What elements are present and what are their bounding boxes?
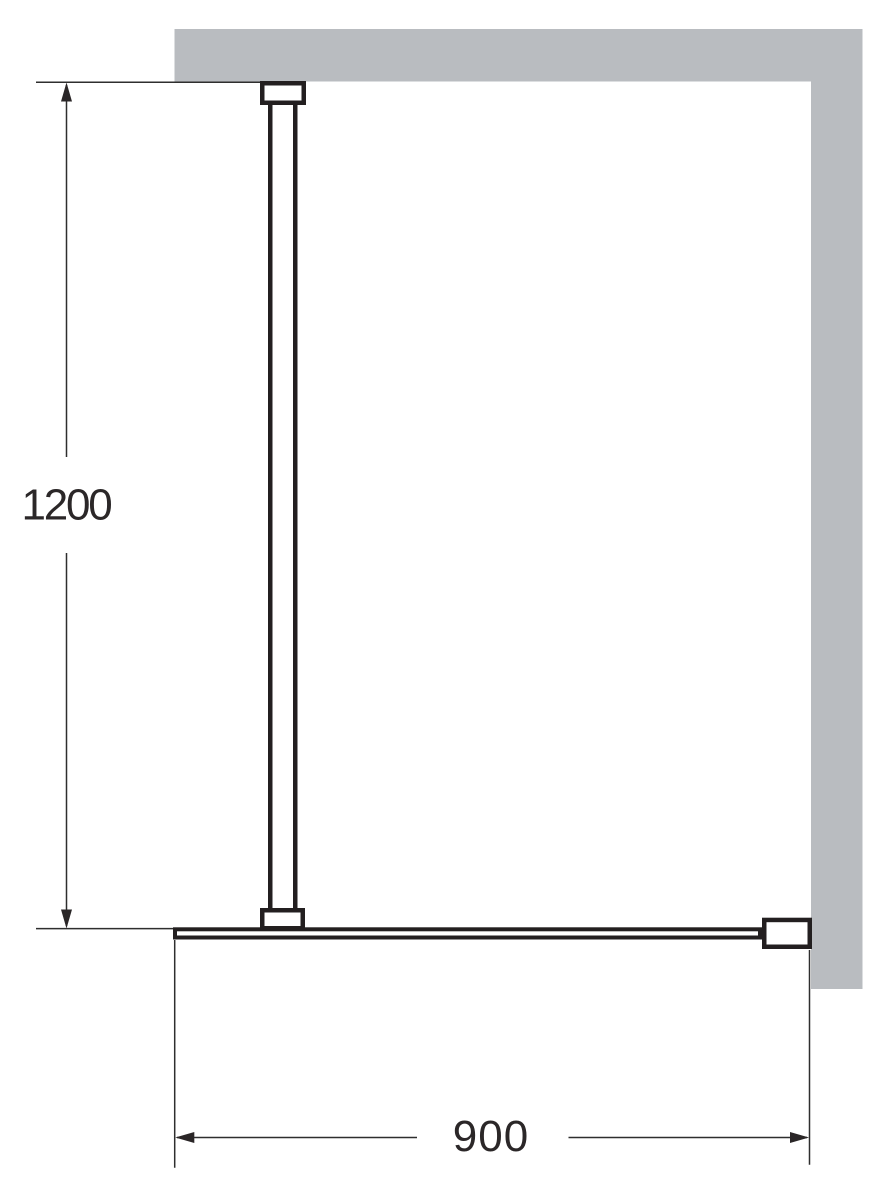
svg-text:1200: 1200 [21, 481, 111, 530]
svg-text:900: 900 [453, 1112, 529, 1161]
